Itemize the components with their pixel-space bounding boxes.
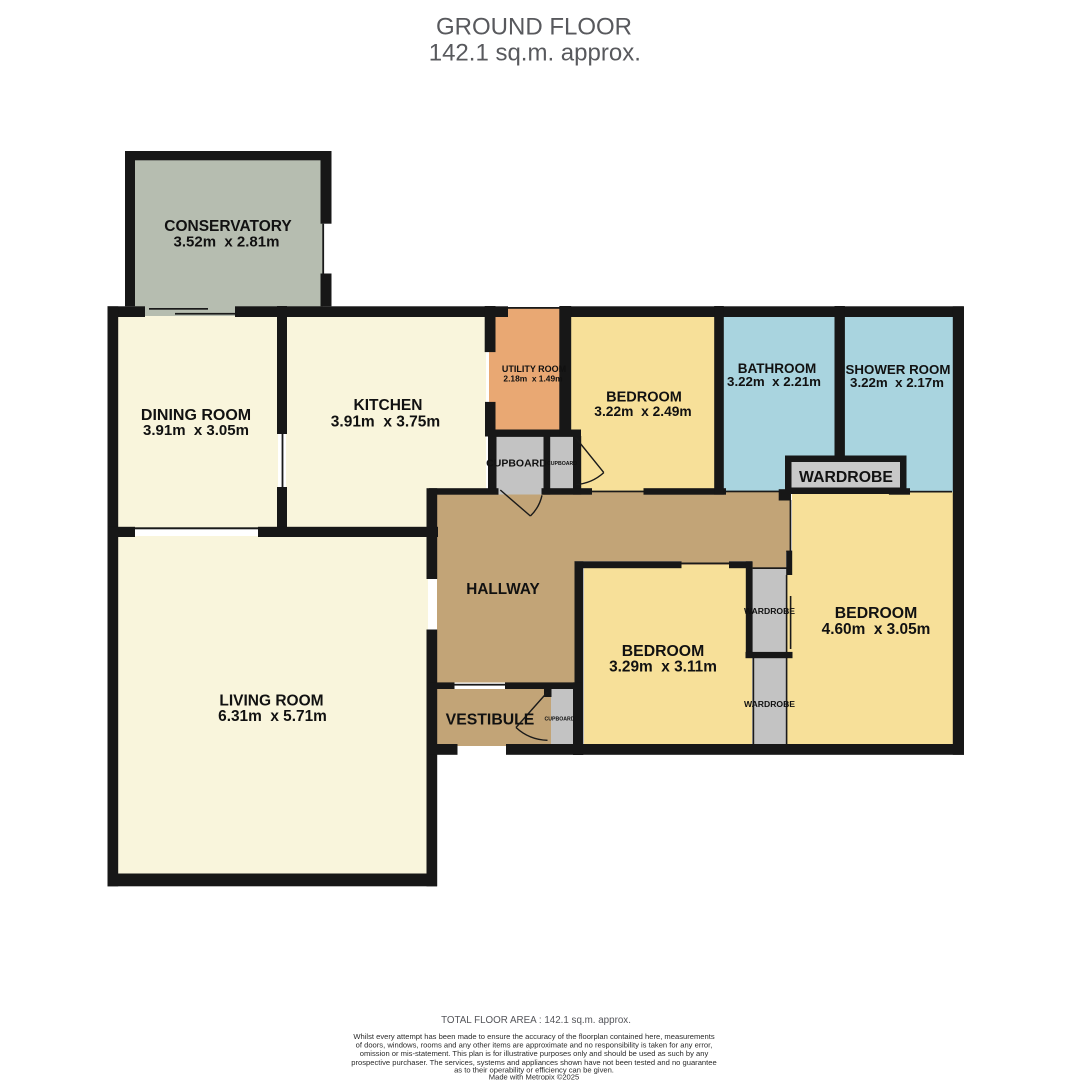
svg-text:CUPBOARD: CUPBOARD	[545, 717, 575, 723]
svg-text:WARDROBE: WARDROBE	[744, 606, 795, 616]
svg-text:CUPBOARD: CUPBOARD	[486, 458, 547, 470]
svg-text:BEDROOM: BEDROOM	[606, 389, 682, 405]
svg-text:CUPBOARD: CUPBOARD	[547, 461, 577, 467]
svg-text:Made with Metropix ©2025: Made with Metropix ©2025	[489, 1072, 579, 1080]
svg-text:3.22m x 2.49m: 3.22m x 2.49m	[594, 404, 691, 419]
svg-text:WARDROBE: WARDROBE	[744, 699, 795, 709]
svg-text:3.91m x 3.75m: 3.91m x 3.75m	[331, 414, 440, 431]
svg-text:2.18m x 1.49m: 2.18m x 1.49m	[503, 374, 562, 384]
svg-text:GROUND FLOOR: GROUND FLOOR	[436, 14, 632, 41]
svg-text:BEDROOM: BEDROOM	[622, 643, 705, 660]
svg-text:3.22m x 2.17m: 3.22m x 2.17m	[850, 375, 944, 390]
svg-text:3.29m x 3.11m: 3.29m x 3.11m	[609, 658, 717, 675]
svg-text:142.1 sq.m. approx.: 142.1 sq.m. approx.	[429, 39, 641, 66]
svg-text:CONSERVATORY: CONSERVATORY	[164, 218, 292, 235]
svg-text:6.31m x 5.71m: 6.31m x 5.71m	[218, 708, 327, 725]
svg-text:UTILITY ROOM: UTILITY ROOM	[502, 364, 566, 374]
svg-text:KITCHEN: KITCHEN	[354, 397, 423, 414]
svg-text:3.91m x 3.05m: 3.91m x 3.05m	[143, 422, 249, 439]
svg-text:WARDROBE: WARDROBE	[799, 469, 893, 486]
svg-text:BEDROOM: BEDROOM	[835, 605, 918, 622]
svg-text:3.52m x 2.81m: 3.52m x 2.81m	[174, 234, 280, 251]
svg-text:3.22m x 2.21m: 3.22m x 2.21m	[727, 374, 821, 389]
svg-text:TOTAL FLOOR AREA : 142.1 sq.m.: TOTAL FLOOR AREA : 142.1 sq.m. approx.	[441, 1015, 631, 1026]
svg-text:HALLWAY: HALLWAY	[466, 581, 539, 598]
svg-text:VESTIBULE: VESTIBULE	[446, 711, 535, 728]
svg-text:4.60m x 3.05m: 4.60m x 3.05m	[822, 621, 931, 638]
